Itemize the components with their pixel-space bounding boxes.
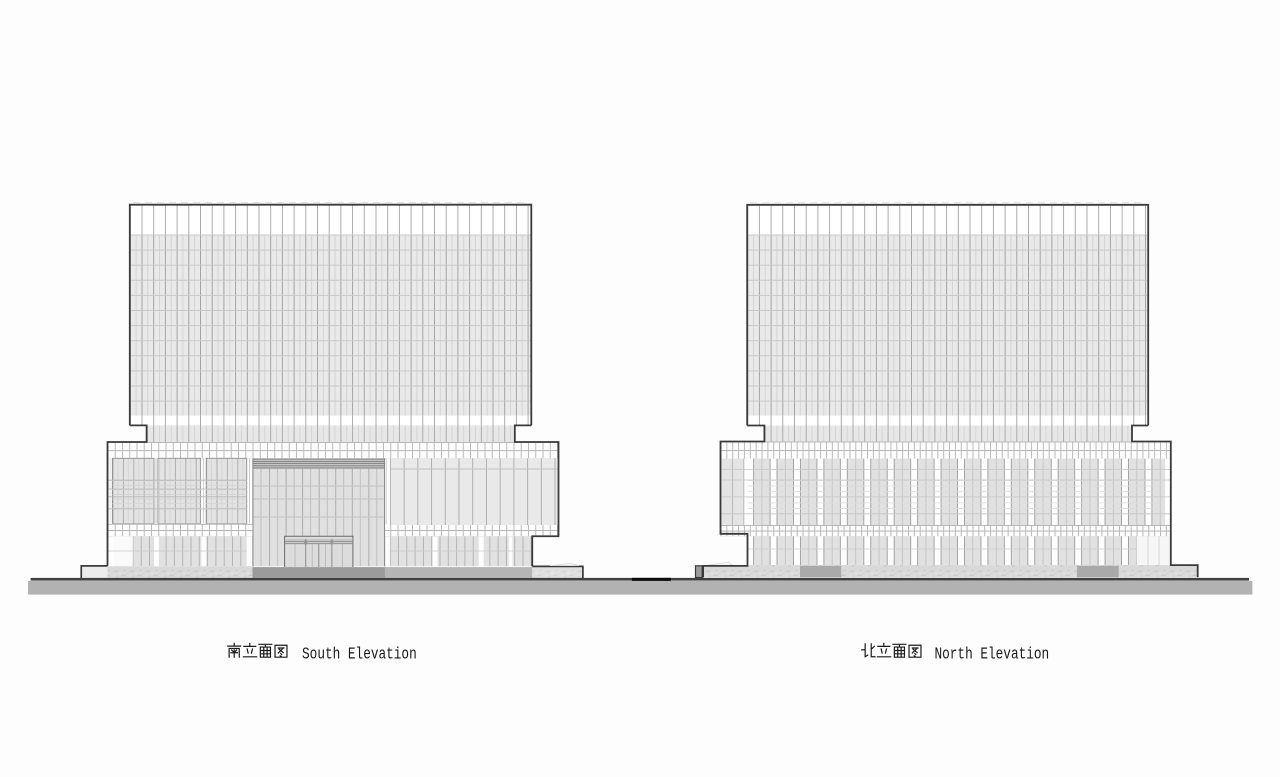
svg-text:North Elevation: North Elevation	[935, 644, 1050, 664]
svg-text:South Elevation: South Elevation	[302, 644, 417, 664]
